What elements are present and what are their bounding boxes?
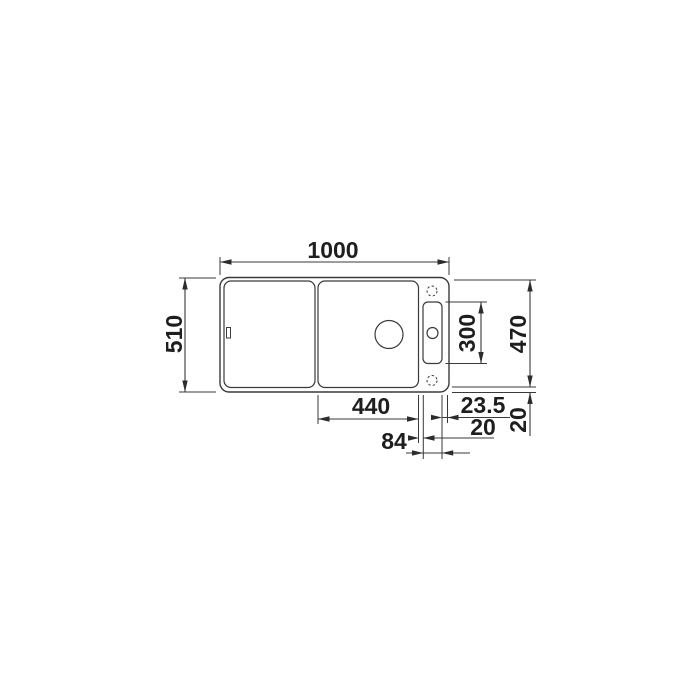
- arrow-left: [220, 259, 232, 264]
- sink-body: [220, 278, 449, 393]
- extension-lines: [423, 395, 442, 459]
- drawing-svg: 1000 510 300 470 20 440: [0, 0, 700, 700]
- sink-outer-edge: [220, 278, 449, 393]
- dim-label-overall-depth: 510: [161, 315, 187, 353]
- drainer-board: [224, 281, 315, 388]
- arrow-bottom: [478, 352, 483, 364]
- drain-hole: [375, 321, 403, 349]
- arrow-top: [478, 302, 483, 314]
- dim-label-overall-width: 1000: [307, 237, 358, 263]
- dim-overall-width: 1000: [220, 237, 449, 275]
- dim-label-bowl-width: 440: [352, 393, 390, 419]
- dim-overall-depth: 510: [161, 278, 216, 392]
- arrow-up: [527, 393, 532, 405]
- tap-hole-option-top: [427, 286, 437, 296]
- dim-ledge-length: 300: [446, 302, 488, 364]
- dim-label-rim-width: 20: [505, 407, 531, 433]
- arrow-left: [408, 435, 419, 440]
- arrow-top: [527, 280, 532, 292]
- arrow-top: [182, 278, 187, 290]
- tap-ledge: [423, 302, 442, 364]
- arrow-right: [407, 416, 419, 421]
- tap-hole-option-bottom: [427, 376, 437, 386]
- arrow-right: [442, 450, 453, 455]
- dim-label-ledge-width: 84: [381, 428, 407, 454]
- arrow-left: [412, 450, 423, 455]
- dim-label-bowl-ledge-gap: 20: [470, 414, 496, 440]
- dim-ledge-width: 84: [381, 395, 470, 459]
- overflow-mark: [227, 328, 231, 339]
- arrow-bottom: [182, 381, 187, 393]
- arrow-left: [318, 416, 330, 421]
- arrow-left: [431, 415, 442, 420]
- dim-label-inner-depth: 470: [505, 315, 531, 353]
- dim-label-ledge-length: 300: [454, 314, 480, 352]
- arrow-right: [438, 259, 450, 264]
- arrow-bottom: [527, 376, 532, 388]
- tap-hole-center: [427, 328, 438, 339]
- arrow-right: [423, 435, 434, 440]
- arrow-right: [448, 415, 459, 420]
- sink-dimension-diagram: 1000 510 300 470 20 440: [0, 0, 700, 700]
